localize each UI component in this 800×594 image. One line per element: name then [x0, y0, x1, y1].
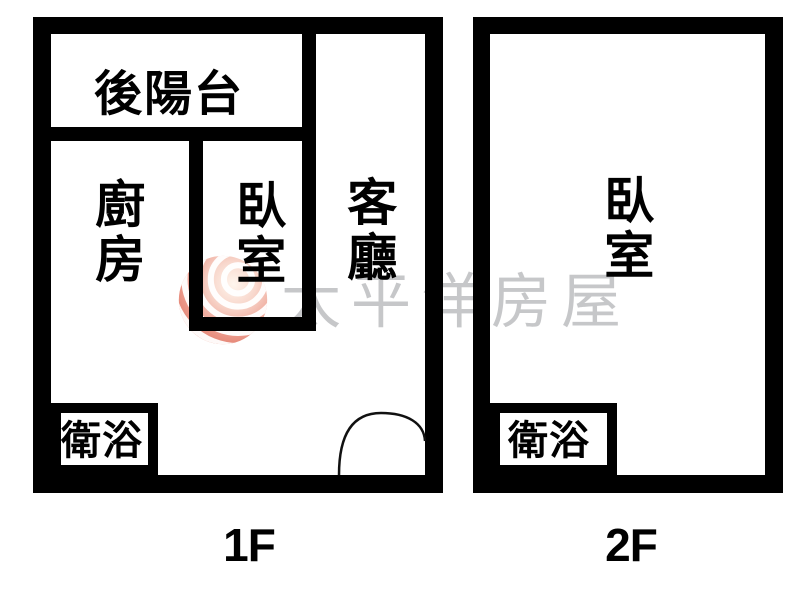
- 1f-bedroom-left-wall: [189, 127, 203, 331]
- room-label-bathroom-1f: 衛浴: [61, 420, 143, 462]
- floor-caption-1f: 1F: [223, 518, 275, 572]
- room-label-bedroom-2f: 臥室: [599, 174, 652, 284]
- room-label-living-room: 客廳: [342, 176, 395, 286]
- floor-caption-2f: 2F: [605, 518, 657, 572]
- room-label-bedroom-1f: 臥室: [231, 179, 284, 289]
- room-label-kitchen: 廚房: [90, 178, 143, 288]
- room-label-bathroom-2f: 衛浴: [508, 420, 590, 462]
- floor-plan-image: 後陽台 廚房 臥室 客廳 衛浴 臥室 衛浴 1F 2F: [0, 0, 800, 594]
- 1f-livingroom-divider-wall: [302, 34, 316, 331]
- room-label-rear-balcony: 後陽台: [94, 70, 244, 120]
- 1f-bedroom-bottom-wall: [189, 317, 316, 331]
- 1f-balcony-bottom-wall: [33, 127, 316, 141]
